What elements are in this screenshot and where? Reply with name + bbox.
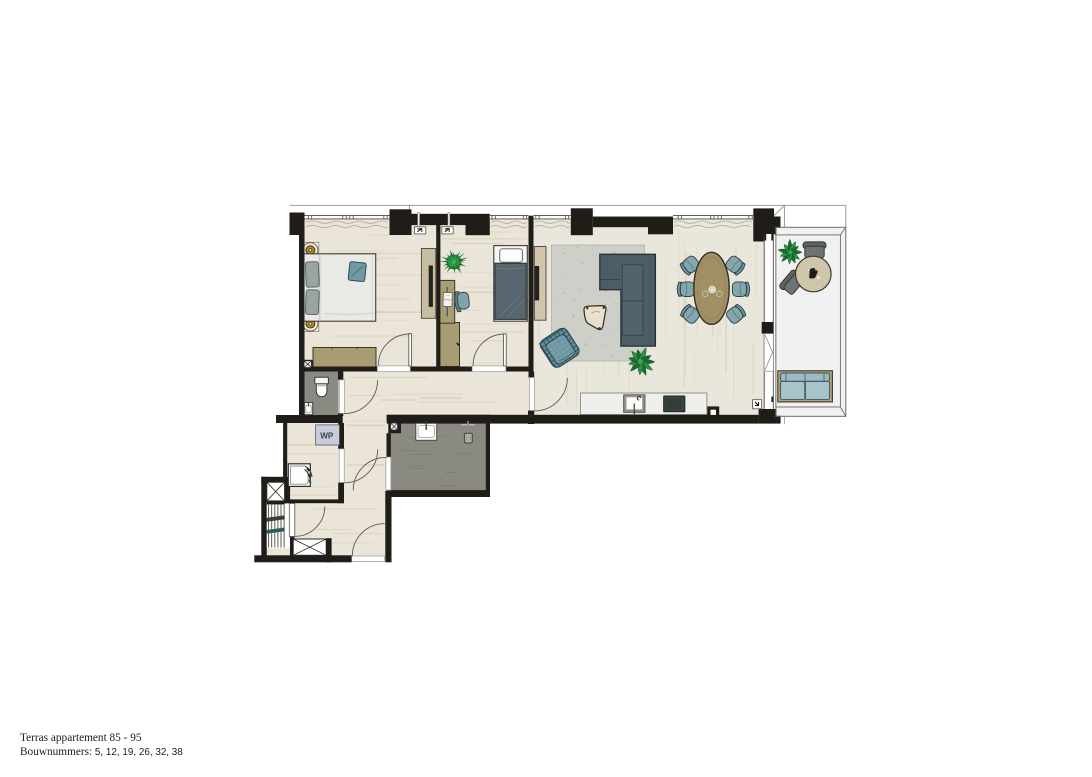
svg-text:Bouwnummers: 5, 12, 19, 26, 3: Bouwnummers: 5, 12, 19, 26, 32, 38	[20, 746, 183, 758]
svg-text:WP: WP	[320, 431, 334, 440]
svg-text:Terras appartement 85 - 95: Terras appartement 85 - 95	[20, 732, 142, 744]
